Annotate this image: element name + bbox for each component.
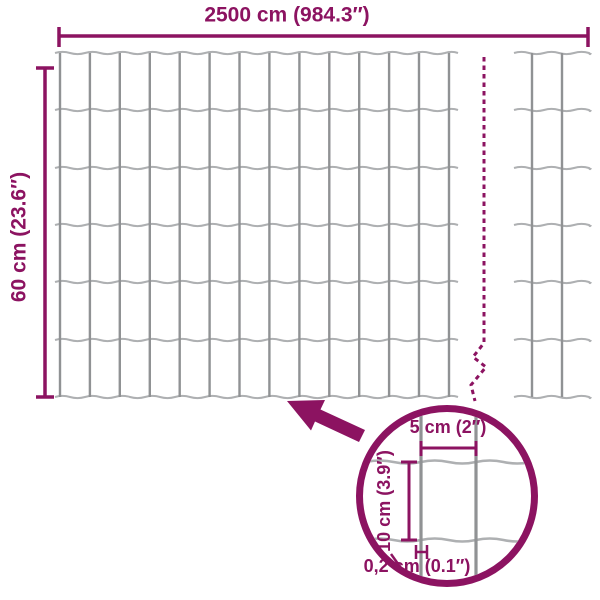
height-dimension-label: 60 cm (23.6″) [9, 172, 30, 302]
width-dimension-line [59, 27, 588, 47]
detail-wire-thickness-label: 0,2 cm (0.1″) [364, 557, 471, 575]
detail-mesh-width-label: 5 cm (2″) [410, 418, 487, 436]
fence-mesh-continuation [514, 52, 591, 398]
zoom-arrow-icon [287, 400, 365, 442]
detail-mesh-height-label: 10 cm (3.9″) [375, 450, 393, 552]
height-dimension-line [36, 68, 54, 397]
diagram-svg [0, 0, 600, 600]
break-line [471, 57, 486, 401]
product-dimension-diagram: 2500 cm (984.3″) 60 cm (23.6″) 5 cm (2″)… [0, 0, 600, 600]
fence-mesh-front [55, 52, 458, 398]
width-dimension-label: 2500 cm (984.3″) [204, 5, 369, 26]
